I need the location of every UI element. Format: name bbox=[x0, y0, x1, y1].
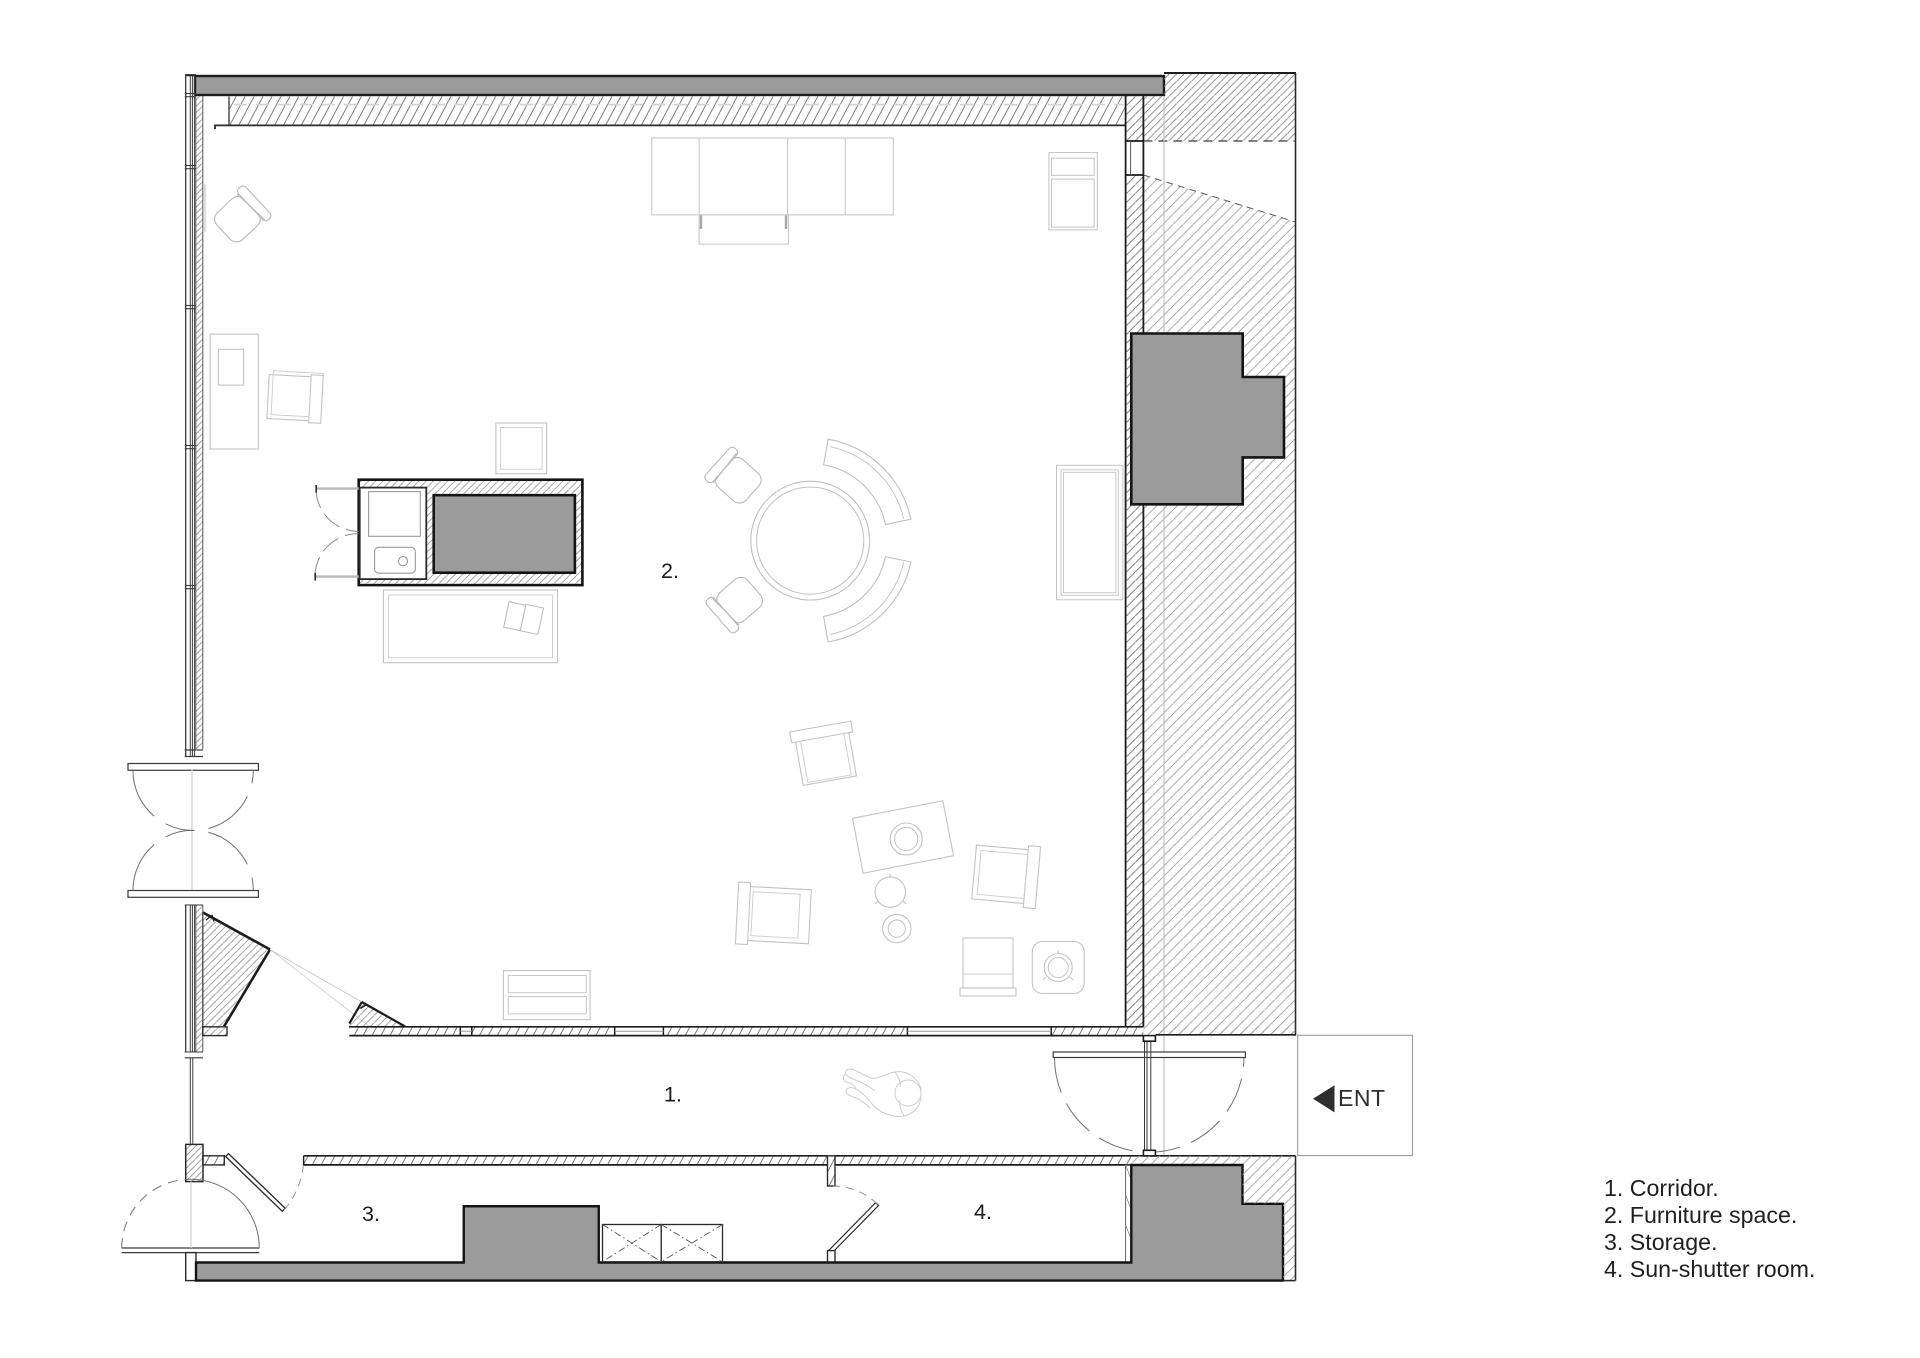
svg-text:3. Storage.: 3. Storage. bbox=[1604, 1229, 1717, 1255]
svg-text:4.: 4. bbox=[974, 1200, 992, 1224]
svg-text:3.: 3. bbox=[362, 1202, 380, 1226]
svg-text:2.: 2. bbox=[661, 559, 679, 583]
svg-text:2. Furniture space.: 2. Furniture space. bbox=[1604, 1202, 1797, 1228]
svg-text:ENT: ENT bbox=[1338, 1085, 1386, 1111]
svg-text:1.: 1. bbox=[664, 1083, 682, 1107]
svg-text:4. Sun-shutter room.: 4. Sun-shutter room. bbox=[1604, 1256, 1815, 1282]
svg-text:1. Corridor.: 1. Corridor. bbox=[1604, 1175, 1719, 1201]
